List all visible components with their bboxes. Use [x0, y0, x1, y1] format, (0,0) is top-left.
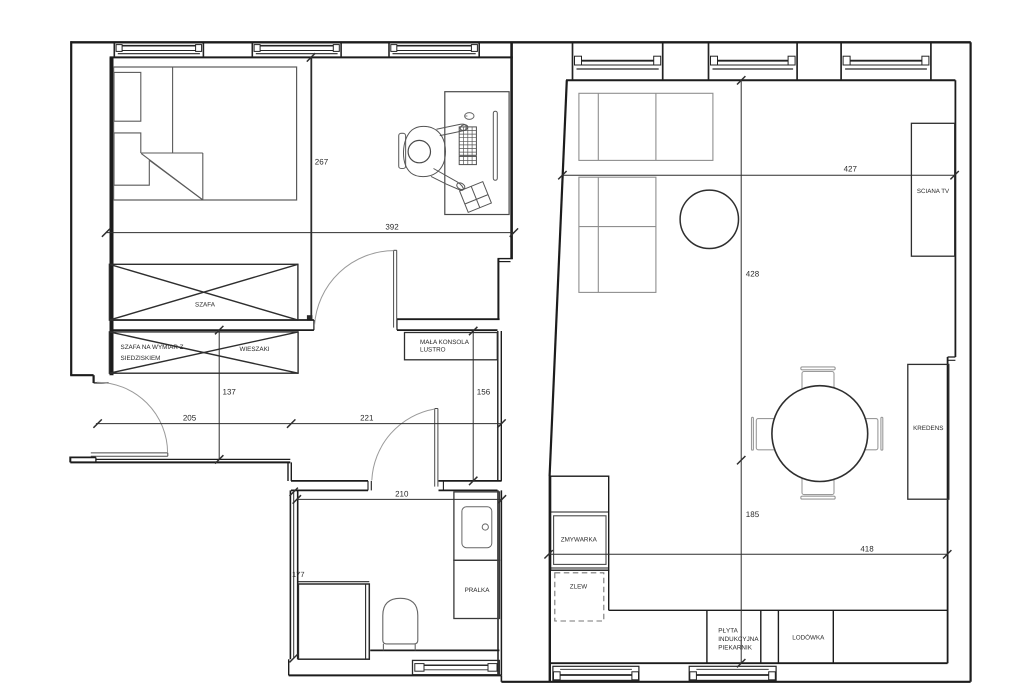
- svg-text:LUSTRO: LUSTRO: [420, 346, 446, 353]
- svg-text:PŁYTA: PŁYTA: [718, 628, 738, 635]
- svg-text:PRALKA: PRALKA: [465, 587, 491, 594]
- svg-text:LODÓWKA: LODÓWKA: [792, 633, 825, 641]
- svg-text:SZAFA: SZAFA: [195, 302, 216, 309]
- svg-text:205: 205: [183, 413, 197, 422]
- svg-text:ZMYWARKA: ZMYWARKA: [561, 537, 598, 544]
- svg-text:PIEKARNIK: PIEKARNIK: [718, 645, 752, 652]
- svg-text:INDUKCYJNA: INDUKCYJNA: [718, 636, 759, 643]
- svg-text:137: 137: [223, 388, 237, 397]
- svg-text:177: 177: [292, 570, 305, 579]
- svg-text:KREDENS: KREDENS: [913, 425, 943, 432]
- svg-text:427: 427: [844, 165, 858, 174]
- svg-text:392: 392: [385, 223, 399, 232]
- svg-text:SIEDZISKIEM: SIEDZISKIEM: [121, 355, 161, 362]
- svg-text:221: 221: [360, 413, 374, 422]
- svg-text:210: 210: [395, 490, 409, 499]
- svg-text:SZAFA NA WYMIAR Z: SZAFA NA WYMIAR Z: [121, 344, 184, 351]
- svg-text:156: 156: [477, 388, 491, 397]
- svg-text:SCIANA TV: SCIANA TV: [917, 188, 950, 195]
- svg-text:MAŁA KONSOLA: MAŁA KONSOLA: [420, 339, 470, 346]
- svg-text:WIESZAKI: WIESZAKI: [239, 346, 269, 353]
- svg-text:428: 428: [746, 270, 760, 279]
- svg-text:418: 418: [860, 544, 874, 553]
- svg-text:185: 185: [746, 510, 760, 519]
- svg-text:267: 267: [315, 158, 329, 167]
- svg-text:ZLEW: ZLEW: [570, 584, 588, 591]
